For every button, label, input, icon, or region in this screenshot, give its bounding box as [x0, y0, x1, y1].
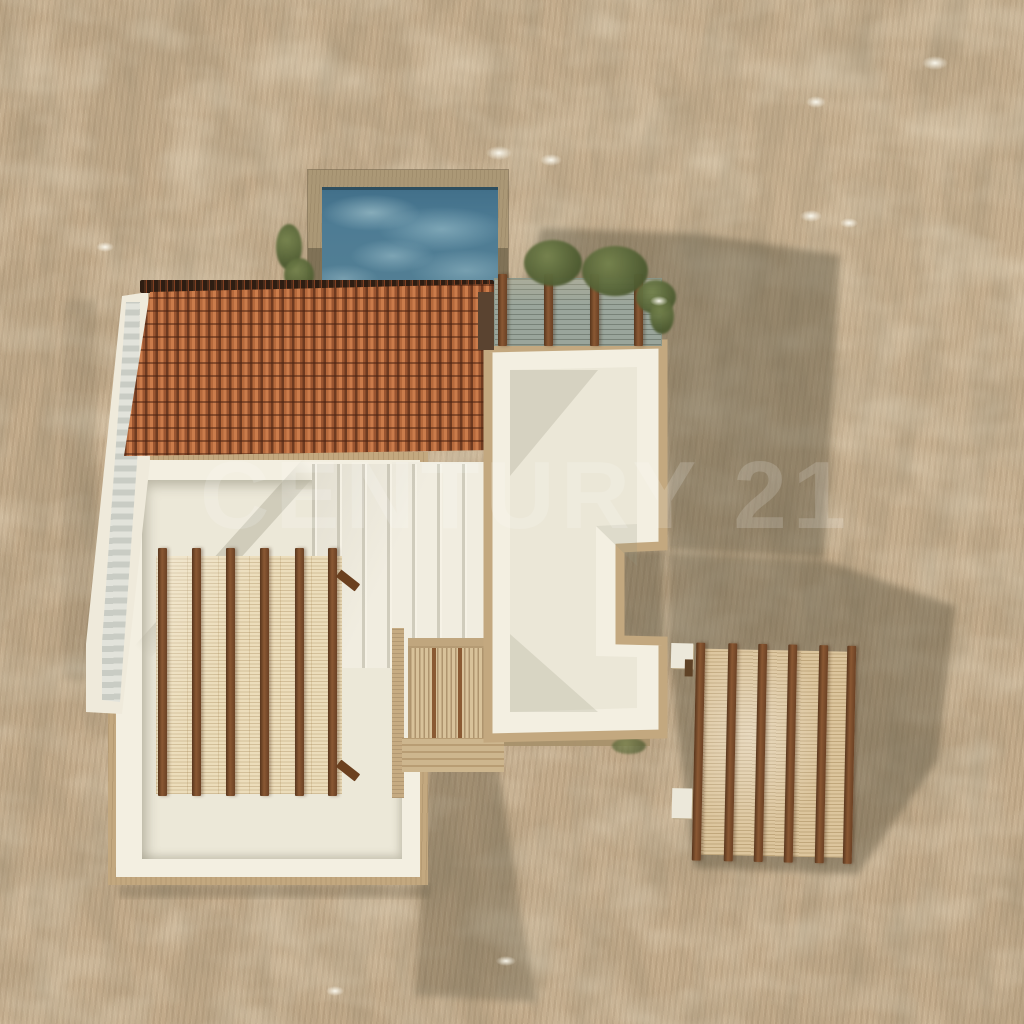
- pergola-beam: [498, 274, 507, 346]
- wall-base-shadow: [118, 884, 430, 898]
- pergola-beam: [328, 548, 337, 796]
- left-pergola-bamboo-mat: [156, 556, 342, 794]
- detached-pergola: [662, 636, 867, 872]
- flower-tuft: [540, 154, 562, 166]
- dark-wood-wall: [478, 292, 494, 350]
- pergola-beam: [226, 548, 235, 796]
- pergola-beam: [158, 548, 167, 796]
- lower-garden-shadow: [414, 756, 536, 1002]
- pergola-beam: [260, 548, 269, 796]
- pergola-beam: [192, 548, 201, 796]
- flower-tuft: [840, 218, 858, 228]
- pool-water: [322, 187, 498, 293]
- flower-tuft: [922, 56, 948, 70]
- terracotta-tiled-roof: [124, 284, 494, 458]
- flower-tuft: [326, 986, 344, 996]
- flower-tuft: [800, 210, 822, 222]
- watermark-text: CENTURY 21: [200, 448, 840, 544]
- pergola-beam: [295, 548, 304, 796]
- flower-tuft: [96, 242, 114, 252]
- flower-tuft: [496, 956, 516, 966]
- flower-tuft: [486, 146, 512, 160]
- shrub: [524, 240, 582, 286]
- flower-tuft: [650, 296, 668, 306]
- render-canvas: CENTURY 21: [0, 0, 1024, 1024]
- wood-stub: [685, 659, 693, 676]
- flower-tuft: [806, 96, 826, 108]
- right-pergola-bamboo-mat: [692, 649, 856, 858]
- pergola-post-cap: [672, 788, 693, 818]
- central-tan-wall: [392, 628, 404, 798]
